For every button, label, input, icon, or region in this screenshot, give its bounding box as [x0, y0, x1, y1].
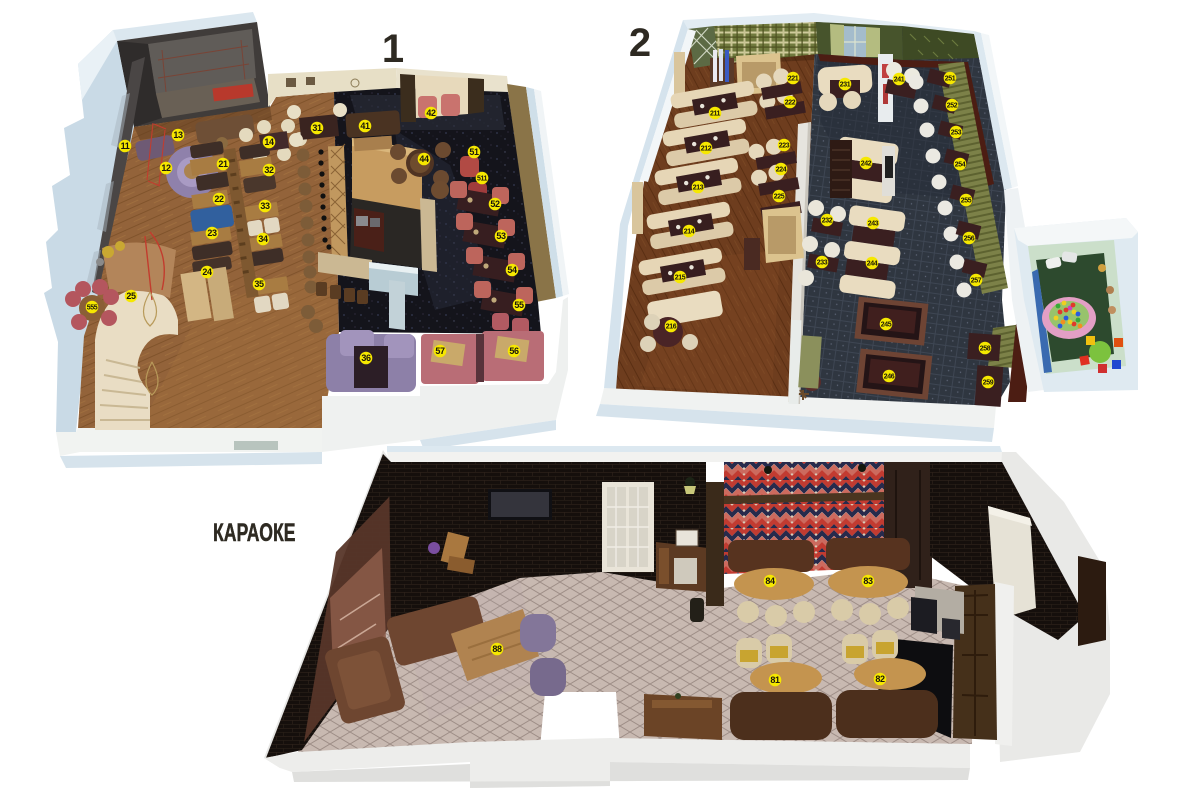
svg-text:35: 35	[254, 279, 264, 289]
svg-text:255: 255	[961, 198, 972, 205]
svg-text:259: 259	[983, 380, 994, 387]
svg-text:42: 42	[426, 108, 436, 118]
svg-text:257: 257	[971, 278, 982, 285]
svg-text:57: 57	[435, 346, 445, 356]
svg-text:251: 251	[945, 76, 956, 83]
svg-text:258: 258	[980, 346, 991, 353]
svg-text:11: 11	[121, 141, 130, 151]
svg-text:1: 1	[382, 27, 404, 71]
svg-text:51: 51	[469, 147, 479, 157]
svg-text:224: 224	[776, 167, 787, 174]
svg-text:13: 13	[173, 130, 183, 140]
svg-text:241: 241	[894, 77, 905, 84]
svg-text:243: 243	[868, 221, 879, 228]
svg-text:252: 252	[947, 103, 958, 110]
svg-text:222: 222	[785, 100, 796, 107]
svg-text:54: 54	[507, 265, 517, 275]
svg-text:256: 256	[964, 236, 975, 243]
svg-text:53: 53	[496, 231, 506, 241]
svg-text:223: 223	[779, 143, 790, 150]
svg-text:511: 511	[477, 176, 488, 183]
svg-text:216: 216	[666, 324, 677, 331]
svg-text:24: 24	[202, 267, 212, 277]
svg-text:КАРАОКЕ: КАРАОКЕ	[213, 519, 296, 547]
svg-text:22: 22	[214, 194, 224, 204]
svg-text:25: 25	[126, 291, 136, 301]
svg-text:34: 34	[258, 234, 268, 244]
svg-text:254: 254	[955, 162, 966, 169]
svg-text:32: 32	[264, 165, 274, 175]
svg-text:33: 33	[260, 201, 270, 211]
svg-text:232: 232	[822, 218, 833, 225]
svg-text:225: 225	[774, 194, 785, 201]
svg-text:82: 82	[875, 674, 885, 684]
svg-text:211: 211	[710, 111, 721, 118]
svg-text:244: 244	[867, 261, 878, 268]
svg-text:245: 245	[881, 322, 892, 329]
svg-text:555: 555	[87, 305, 98, 312]
svg-text:52: 52	[490, 199, 500, 209]
svg-text:81: 81	[770, 675, 780, 685]
svg-text:84: 84	[765, 576, 775, 586]
svg-text:36: 36	[361, 353, 371, 363]
svg-text:44: 44	[419, 154, 429, 164]
svg-text:83: 83	[863, 576, 873, 586]
svg-text:221: 221	[788, 76, 799, 83]
svg-text:246: 246	[884, 374, 895, 381]
svg-text:213: 213	[693, 185, 704, 192]
svg-text:41: 41	[360, 121, 370, 131]
svg-text:14: 14	[264, 137, 274, 147]
svg-text:253: 253	[951, 130, 962, 137]
svg-text:233: 233	[817, 260, 828, 267]
svg-text:31: 31	[312, 123, 322, 133]
svg-text:23: 23	[207, 228, 217, 238]
svg-text:212: 212	[701, 146, 712, 153]
svg-text:21: 21	[218, 159, 228, 169]
svg-text:214: 214	[684, 229, 695, 236]
svg-text:12: 12	[161, 163, 171, 173]
svg-text:55: 55	[514, 300, 524, 310]
svg-text:2: 2	[629, 21, 651, 65]
svg-text:231: 231	[840, 82, 851, 89]
svg-text:56: 56	[509, 346, 519, 356]
svg-text:88: 88	[492, 644, 502, 654]
svg-text:242: 242	[861, 161, 872, 168]
svg-text:215: 215	[675, 275, 686, 282]
